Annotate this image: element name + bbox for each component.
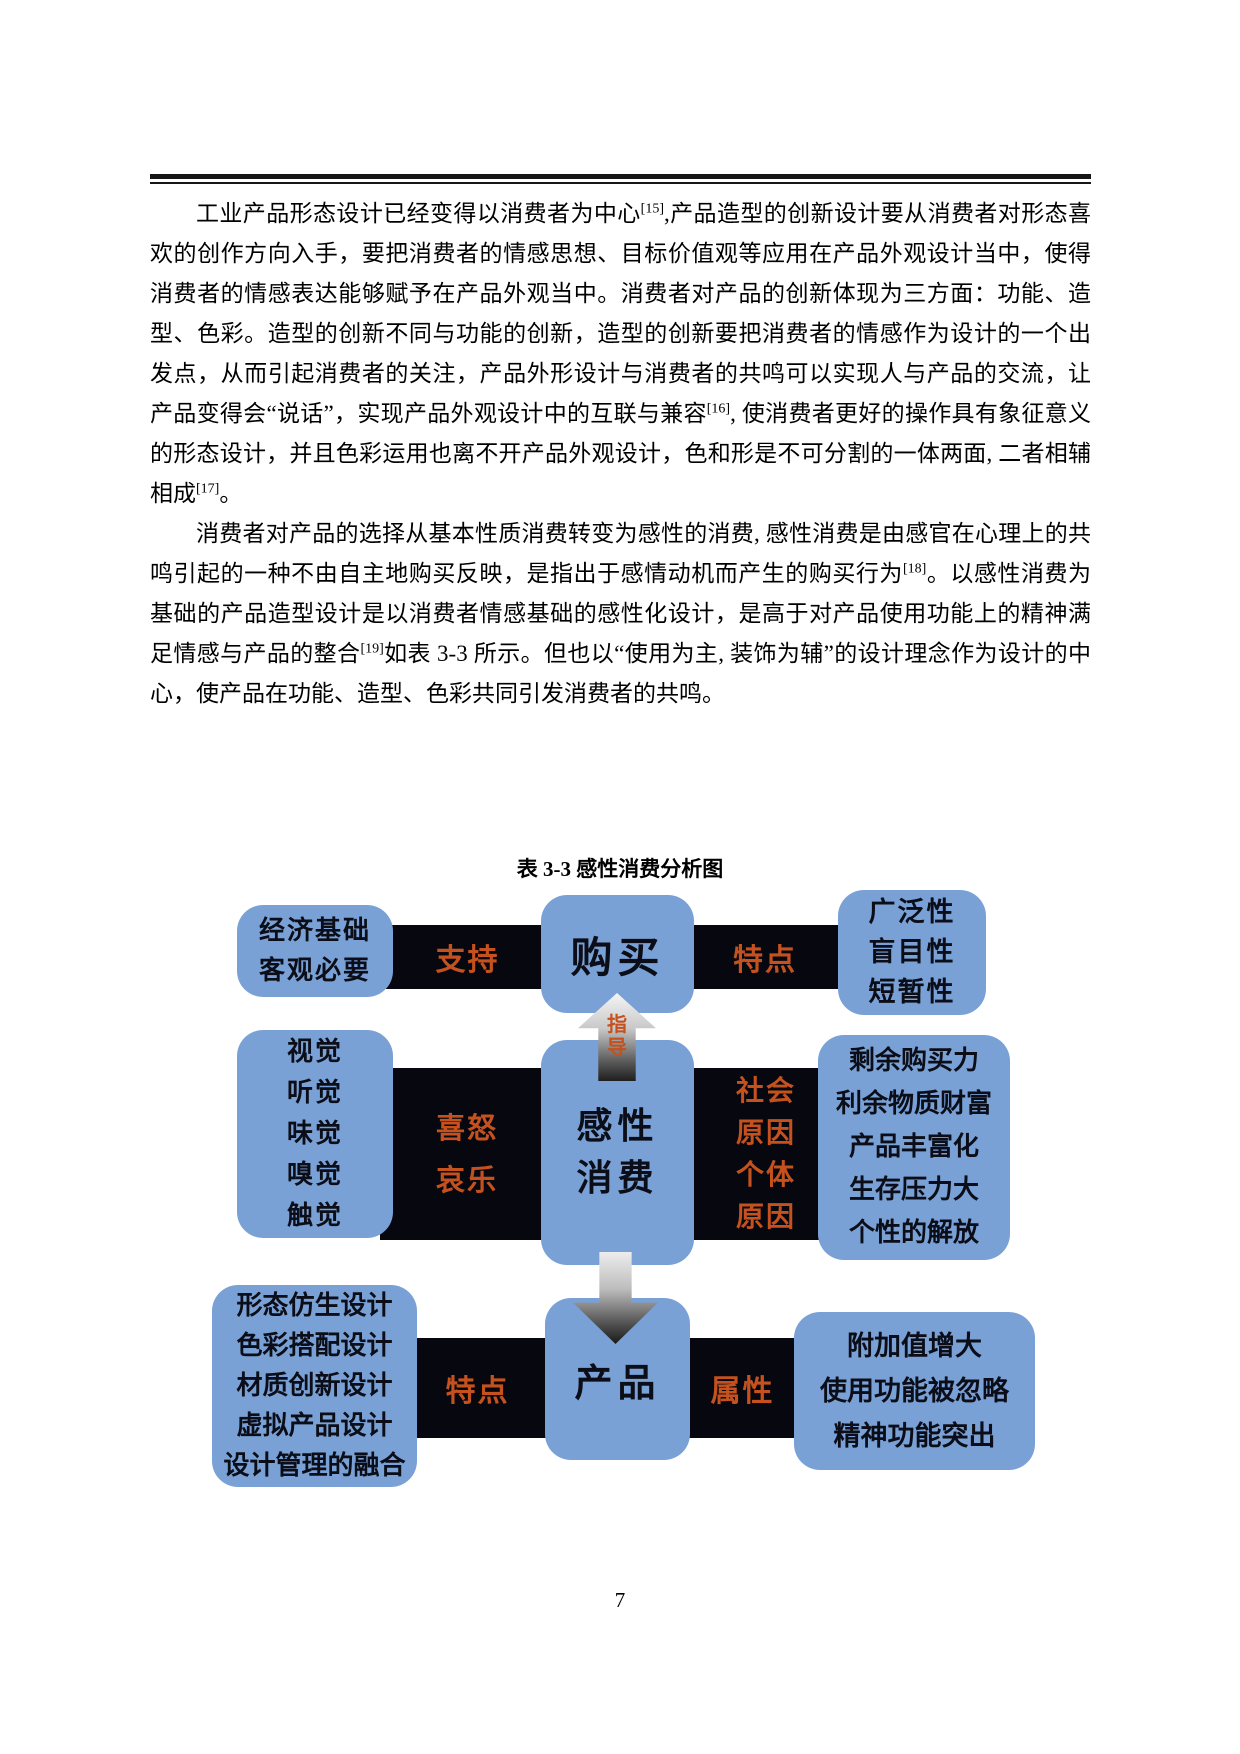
paragraph-1: 工业产品形态设计已经变得以消费者为中心[15],产品造型的创新设计要从消费者对形… [150, 194, 1091, 514]
row1-left-bar-label: 支持 [436, 935, 500, 979]
header-rule-thin-line [150, 182, 1091, 184]
row1-left-connector-bar: 支持 [385, 925, 550, 989]
figure-caption: 表 3-3 感性消费分析图 [0, 853, 1240, 883]
body-text: 工业产品形态设计已经变得以消费者为中心[15],产品造型的创新设计要从消费者对形… [150, 194, 1091, 714]
row3-right-bar-label: 属性 [711, 1366, 775, 1410]
row2-left-box: 视觉听觉味觉嗅觉触觉 [237, 1030, 393, 1238]
arrow-up-label: 指导 [578, 993, 656, 1081]
header-rule-thick-line [150, 174, 1091, 179]
row2-right-box: 剩余购买力利余物质财富产品丰富化生存压力大个性的解放 [818, 1035, 1010, 1260]
row2-right-bar-label: 社会原因个体原因 [694, 1068, 838, 1240]
row3-left-connector-bar: 特点 [400, 1338, 555, 1438]
product-label: 产品 [574, 1352, 660, 1407]
header-rule [150, 174, 1091, 184]
row1-right-connector-bar: 特点 [685, 925, 845, 989]
row1-right-bar-label: 特点 [733, 935, 797, 979]
row3-right-connector-bar: 属性 [680, 1338, 805, 1438]
document-page: 工业产品形态设计已经变得以消费者为中心[15],产品造型的创新设计要从消费者对形… [0, 0, 1240, 1754]
row1-right-box: 广泛性盲目性短暂性 [838, 890, 986, 1015]
row2-left-bar-label: 喜怒哀乐 [393, 1068, 541, 1240]
paragraph-2: 消费者对产品的选择从基本性质消费转变为感性的消费, 感性消费是由感官在心理上的共… [150, 514, 1091, 714]
row1-left-box: 经济基础客观必要 [237, 905, 393, 997]
emotional-consumption-diagram: 支持 特点 经济基础客观必要 购买 广泛性盲目性短暂性 指导 喜怒哀乐 社会原因… [205, 890, 1035, 1495]
page-number: 7 [0, 1588, 1240, 1613]
row3-right-box: 附加值增大使用功能被忽略精神功能突出 [794, 1312, 1035, 1470]
row3-left-bar-label: 特点 [446, 1366, 510, 1410]
purchase-label: 购买 [570, 924, 664, 985]
row3-left-box: 形态仿生设计色彩搭配设计材质创新设计虚拟产品设计设计管理的融合 [212, 1285, 417, 1487]
